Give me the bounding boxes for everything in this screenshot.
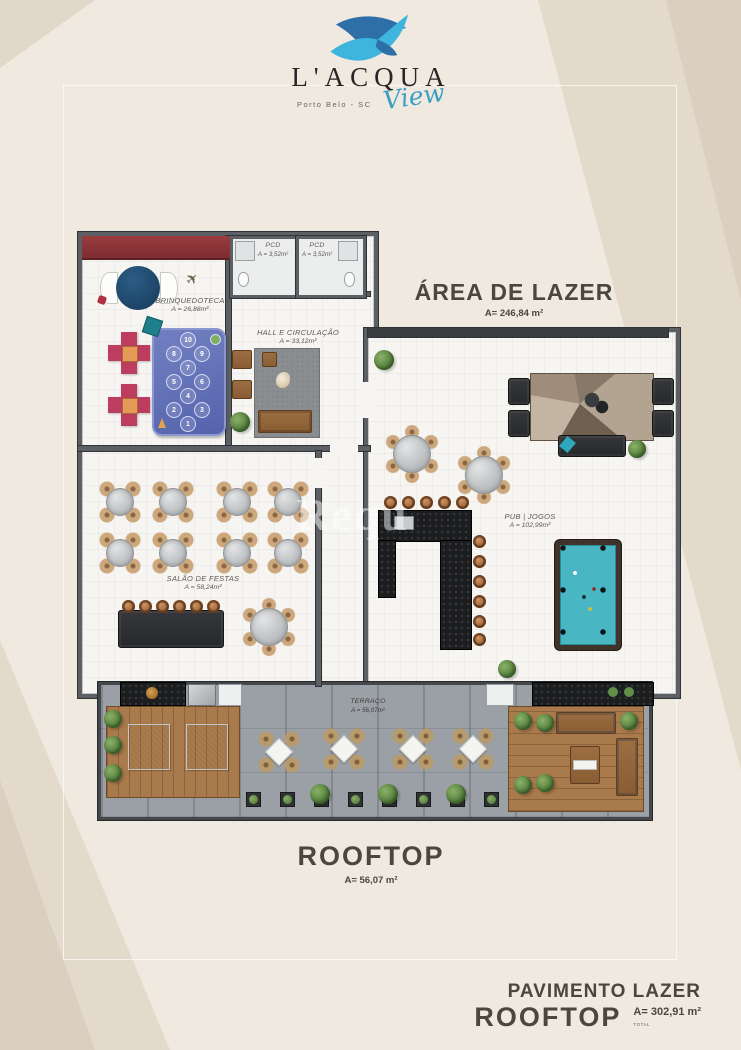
rug-number: 3 [194,402,210,418]
planter [280,792,295,807]
plant [310,784,330,804]
room-name: PUB | JOGOS [480,512,580,522]
pcd2-label: PCD A = 3,52m² [296,242,338,259]
sun-lounger [186,724,228,770]
stool [420,496,433,509]
footer-area: A= 302,91 m² TOTAL [633,1007,701,1029]
planter [484,792,499,807]
rooftop-title: ROOFTOP [271,841,471,872]
brochure-page: L'ACQUA View Porto Belo - SC ÁREA DE LAZ… [0,0,741,1050]
round-table-4 [98,531,142,575]
plant [514,776,532,794]
kids-play-table [108,384,150,426]
rug-number: 1 [180,416,196,432]
stool [438,496,451,509]
kids-play-table [108,332,150,374]
stool [473,575,486,588]
rug-number: 5 [166,374,182,390]
hall-side-table [262,352,277,367]
plant [536,714,554,732]
room-area: A = 56,07m² [328,707,408,715]
lounge-armchair [508,378,530,405]
hall-armchair [232,380,252,399]
wall-salao-top [78,446,370,451]
brinquedoteca-label: BRINQUEDOTECA A = 26,88m² [130,296,250,315]
terrace-table [390,726,436,772]
terrace-table [256,729,302,775]
plant [498,660,516,678]
room-area: A = 58,24m² [143,584,263,593]
terraco-label: TERRAÇO A = 56,07m² [328,698,408,715]
stool [190,600,203,613]
rug-number: 7 [180,360,196,376]
room-area: A = 3,52m² [296,251,338,259]
lounge-armchair [652,378,674,405]
plant [620,712,638,730]
stool [173,600,186,613]
rug-number: 10 [180,332,196,348]
hall-armchair [232,350,252,369]
door-hall-salao [330,444,358,454]
planter [416,792,431,807]
buffet-counter [118,610,224,648]
toilet [344,272,355,287]
logo-name: L'ACQUA [261,62,481,93]
stool [473,535,486,548]
room-area: A = 3,52m² [252,251,294,259]
hopscotch-rug: 1 2 3 4 5 6 7 8 9 10 [152,328,226,436]
stool [122,600,135,613]
footer-area-value: A= 302,91 m² [633,1006,701,1018]
logo-location: Porto Belo - SC [297,100,372,109]
lounge-coffee-table [583,390,609,416]
salao-label: SALÃO DE FESTAS A = 58,24m² [143,574,263,593]
planter [246,792,261,807]
footer-rooftop: ROOFTOP [474,1004,621,1031]
plant [230,412,250,432]
grill-plate [146,687,158,699]
plant [104,710,122,728]
footer-line1: PAVIMENTO LAZER [371,981,701,1003]
bird-logo-icon [326,10,418,66]
brinquedoteca-red-cabinet [82,236,230,260]
deck-bench [616,738,638,796]
stool [473,595,486,608]
rug-number: 8 [166,346,182,362]
rug-rocket [158,418,166,428]
plant [374,350,394,370]
round-table-4 [151,531,195,575]
stool [207,600,220,613]
terrace-table [450,726,496,772]
terrace-bar-counter [532,682,654,706]
hall-label: HALL E CIRCULAÇÃO A = 33,12m² [236,328,360,347]
plant [378,784,398,804]
room-area: A = 33,12m² [236,338,360,347]
rooftop-area: A= 56,07 m² [271,875,471,886]
round-table-4 [151,480,195,524]
room-name: BRINQUEDOTECA [130,296,250,306]
footer-block: PAVIMENTO LAZER ROOFTOP A= 302,91 m² TOT… [371,981,701,1031]
door-hall-pub [361,382,373,418]
room-area: A = 102,99m² [480,522,580,531]
stool [156,600,169,613]
round-table-6 [383,425,441,483]
bar-plate [624,687,634,697]
pub-top-band [368,328,668,337]
bar-plate [608,687,618,697]
shower [338,241,358,261]
lounge-armchair [508,410,530,437]
room-name: TERRAÇO [328,698,408,707]
stool [473,633,486,646]
rug-number: 6 [194,374,210,390]
round-table-6 [240,598,298,656]
footer-area-note: TOTAL [633,1022,650,1027]
planter [348,792,363,807]
bar-counter [440,540,472,650]
stool [456,496,469,509]
stool [473,615,486,628]
plant [514,712,532,730]
lounge-armchair [652,410,674,437]
pool-table [555,540,621,650]
round-table-4 [98,480,142,524]
stool [139,600,152,613]
hall-sofa [258,410,312,433]
plant [628,440,646,458]
room-name: SALÃO DE FESTAS [143,574,263,584]
room-name: HALL E CIRCULAÇÃO [236,328,360,338]
deck-bench [556,712,616,734]
rooftop-heading: ROOFTOP A= 56,07 m² [271,841,471,886]
room-name: PCD [252,242,294,251]
rug-planet [210,334,221,345]
pub-label: PUB | JOGOS A = 102,99m² [480,512,580,531]
plant [536,774,554,792]
sun-lounger [128,724,170,770]
pcd1-label: PCD A = 3,52m² [252,242,294,259]
stool [473,555,486,568]
white-counter [486,684,514,706]
room-area: A = 26,88m² [130,306,250,315]
toilet [238,272,249,287]
terrace-table [321,726,367,772]
deck-tray [573,760,597,770]
plant [446,784,466,804]
round-table-4 [215,531,259,575]
white-counter [218,684,242,706]
room-name: PCD [296,242,338,251]
rug-number: 2 [166,402,182,418]
plant [104,764,122,782]
rug-number: 4 [180,388,196,404]
round-table-4 [215,480,259,524]
plant [104,736,122,754]
bar-counter [378,540,396,598]
steel-counter [188,684,216,706]
door-salao [314,458,323,488]
watermark: Requ [296,488,409,541]
rug-number: 9 [194,346,210,362]
